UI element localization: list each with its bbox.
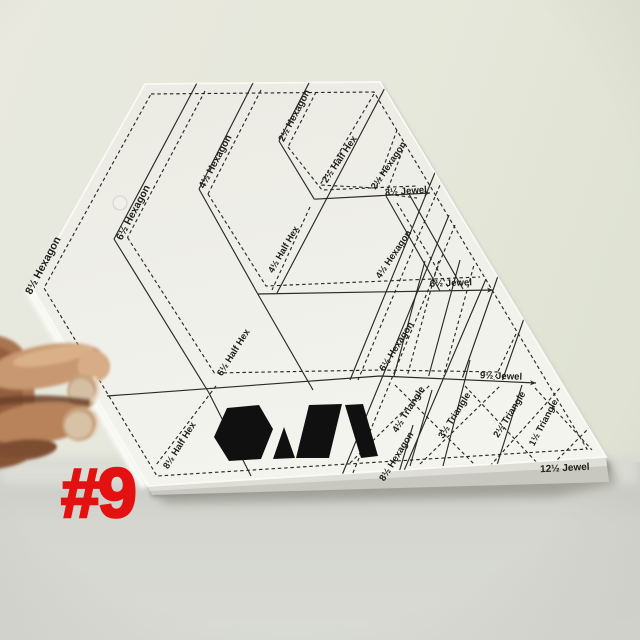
svg-text:#9: #9 [61, 454, 135, 532]
svg-text:6½ Jewel: 6½ Jewel [430, 277, 472, 289]
svg-text:9½ Jewel: 9½ Jewel [480, 370, 522, 382]
